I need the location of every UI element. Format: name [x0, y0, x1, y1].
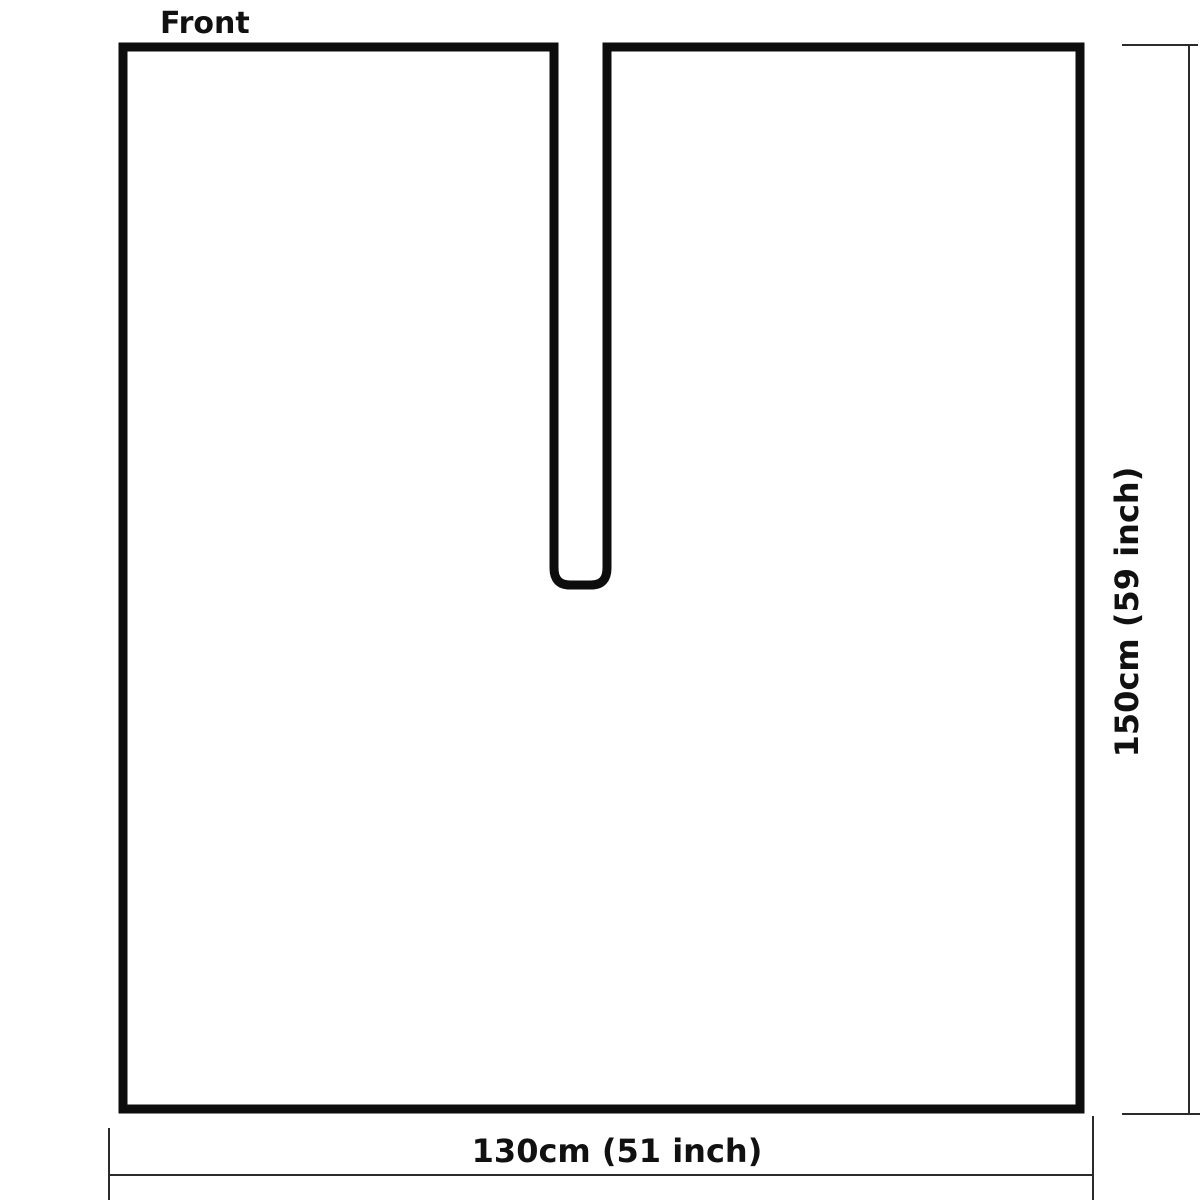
size-diagram: Front 130cm (51 inch) 150cm (59 inch): [0, 0, 1200, 1200]
neck-slit-shape: [554, 43, 607, 586]
front-label: Front: [160, 6, 250, 41]
size-diagram-svg: Front 130cm (51 inch) 150cm (59 inch): [0, 0, 1200, 1200]
height-dimension-label: 150cm (59 inch): [1108, 467, 1146, 758]
width-dimension-label: 130cm (51 inch): [472, 1132, 763, 1170]
